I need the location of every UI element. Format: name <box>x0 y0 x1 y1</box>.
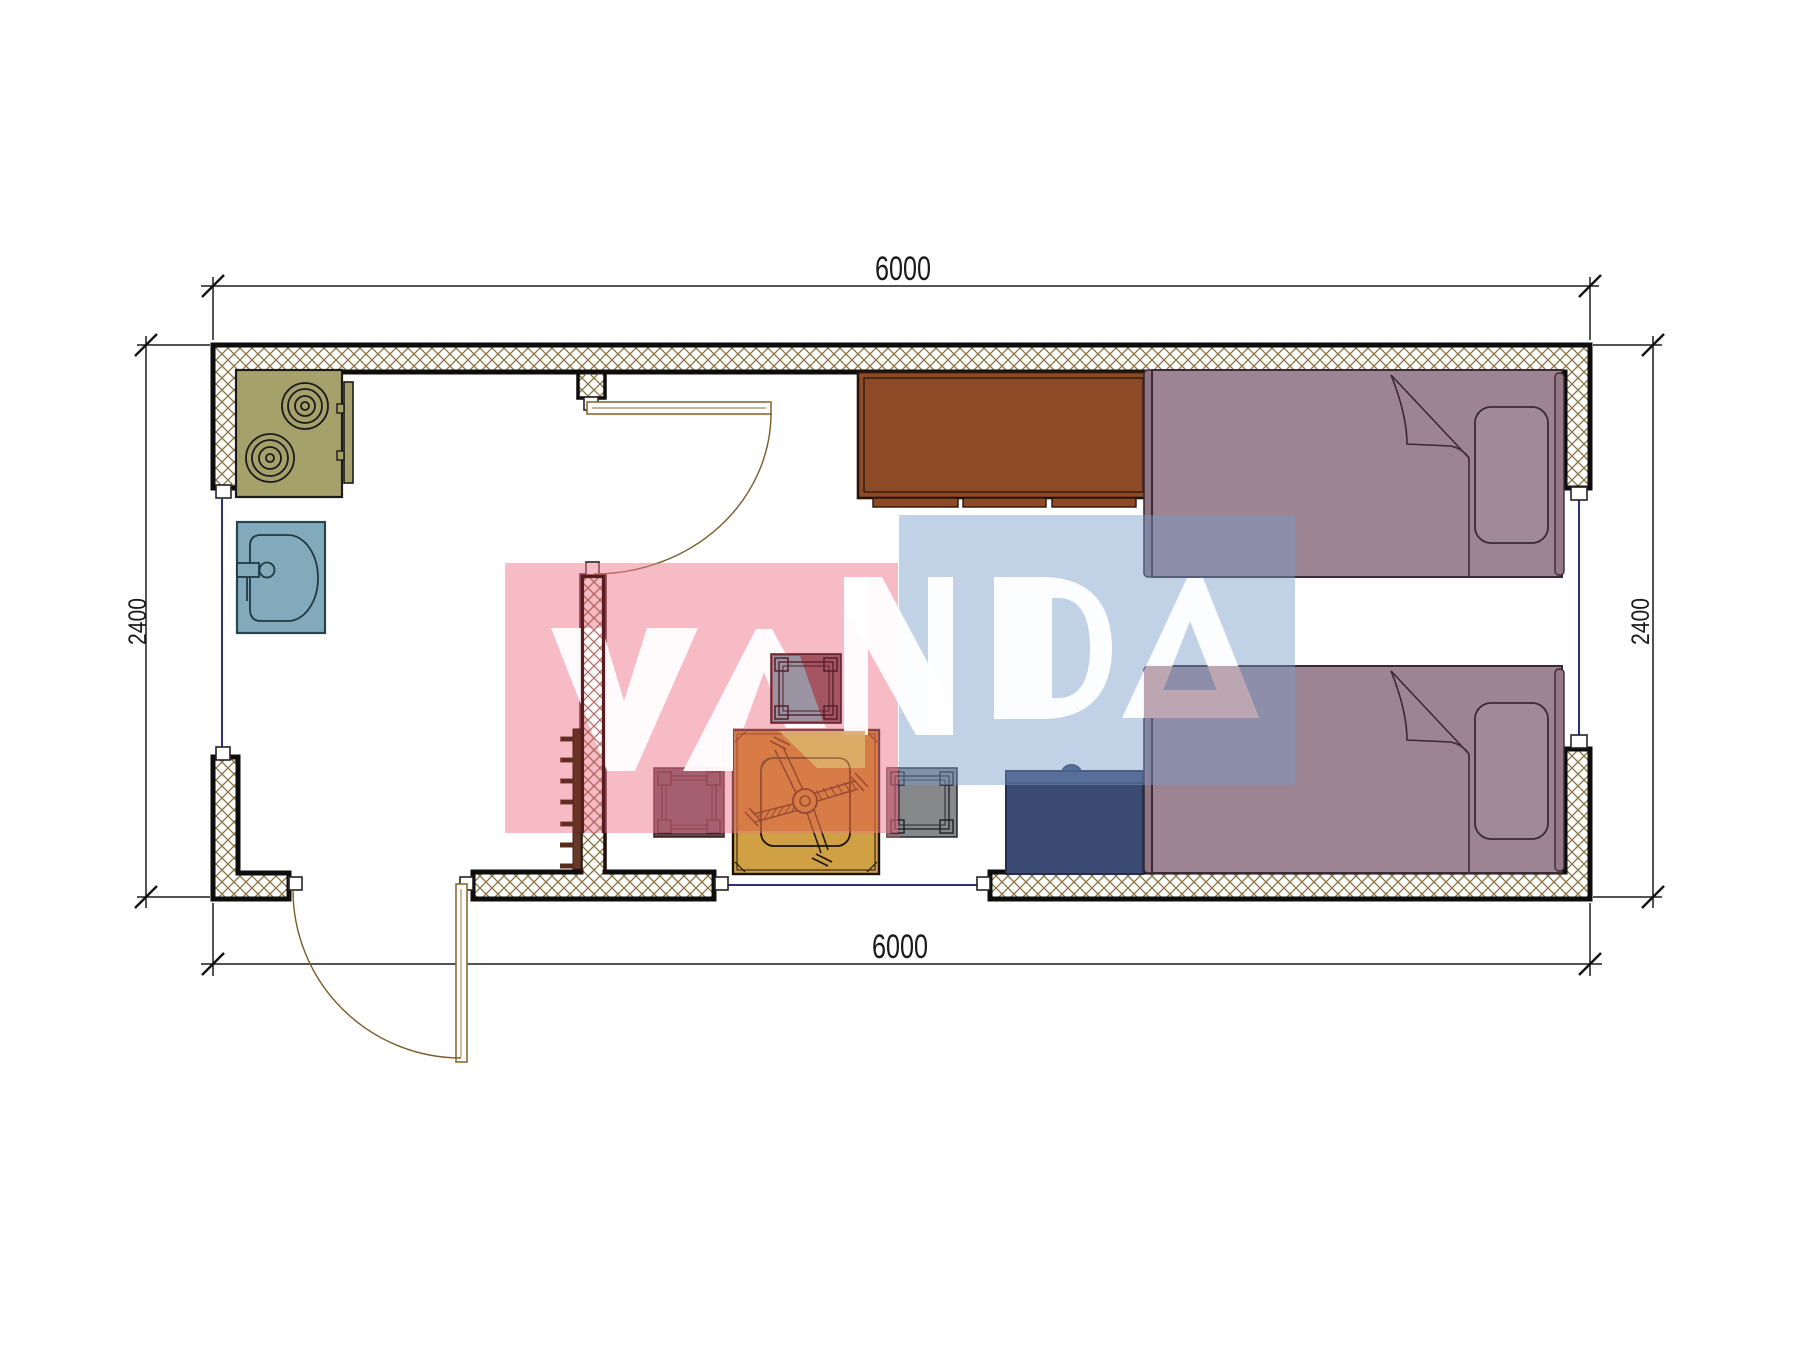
svg-text:2400: 2400 <box>1627 598 1655 645</box>
svg-text:6000: 6000 <box>875 250 931 288</box>
svg-text:2400: 2400 <box>124 598 152 645</box>
svg-text:6000: 6000 <box>872 928 928 966</box>
